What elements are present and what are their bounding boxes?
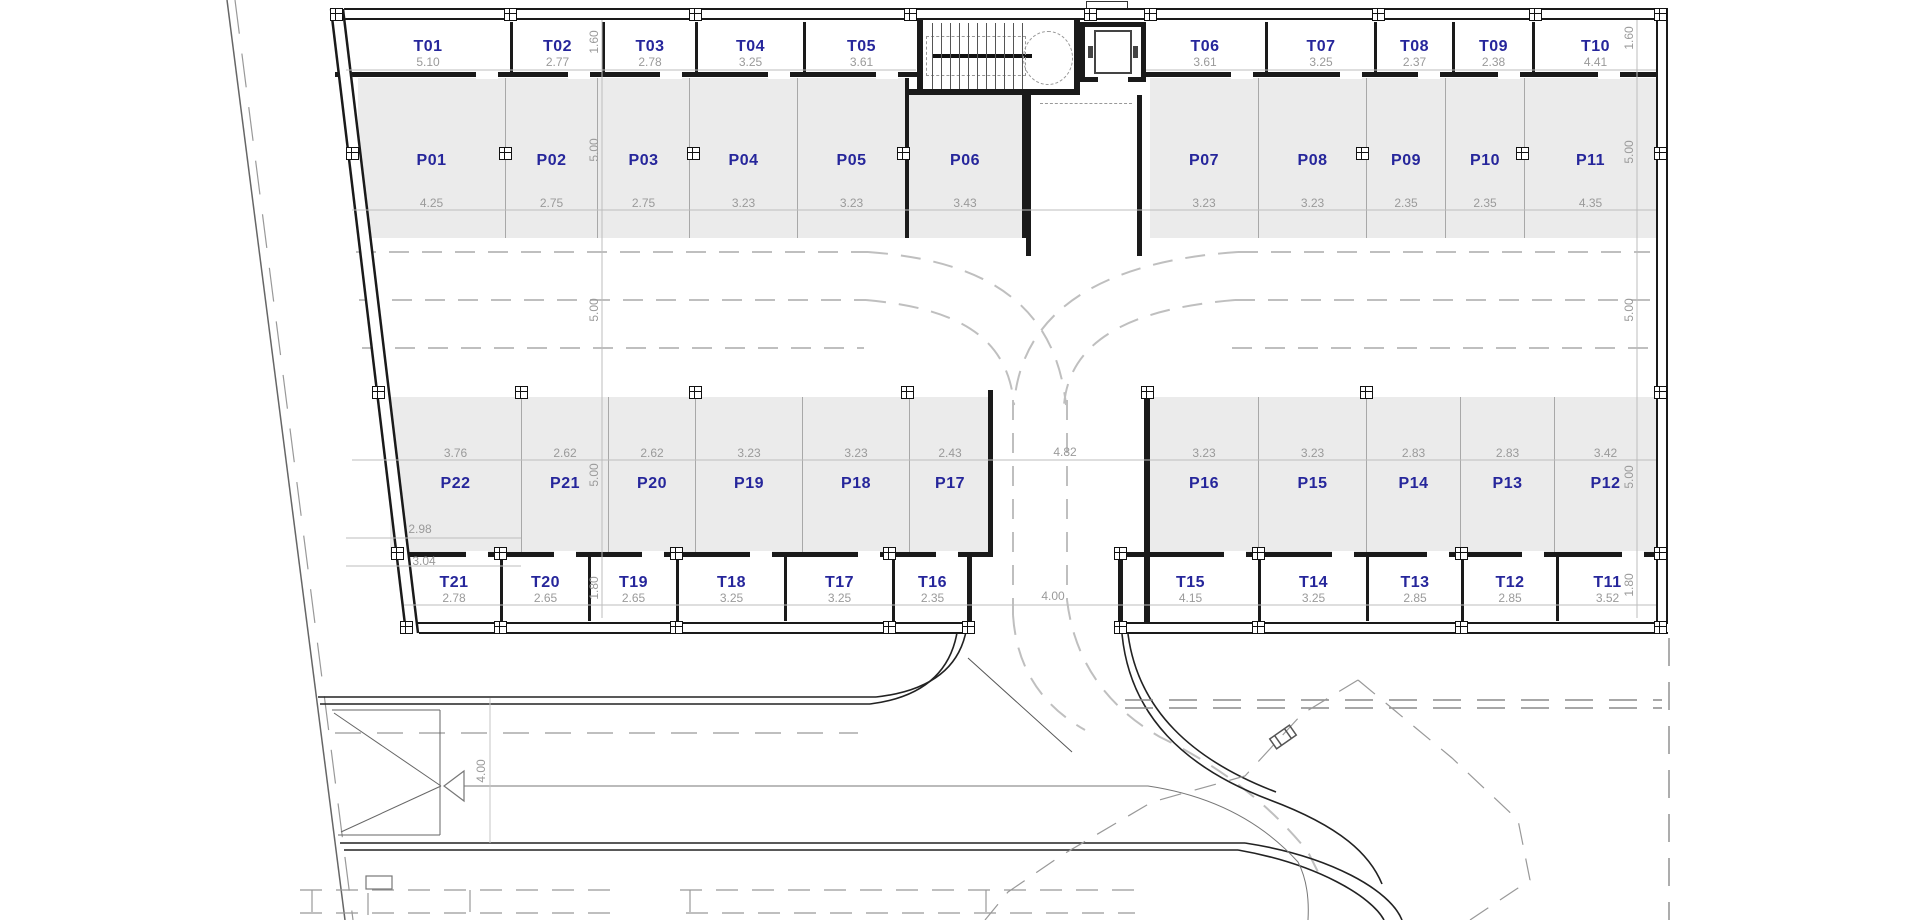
stair-tread xyxy=(995,23,996,89)
wall xyxy=(1141,22,1146,82)
column-marker xyxy=(504,8,517,21)
site-boundary-line xyxy=(227,0,345,920)
dimension-label: 1.80 xyxy=(1622,573,1636,596)
column-marker xyxy=(687,147,700,160)
parking-spot-P03: P032.75 xyxy=(597,78,689,238)
column-marker xyxy=(1516,147,1529,160)
room-label: P01 xyxy=(358,152,505,170)
parking-spot-P08: P083.23 xyxy=(1258,78,1366,238)
room-dimension: 3.25 xyxy=(1268,55,1374,69)
stair-tread xyxy=(941,23,942,89)
room-dimension: 4.35 xyxy=(1525,196,1656,210)
parking-spot-P17: P172.43 xyxy=(909,397,990,557)
room-label: P14 xyxy=(1367,475,1460,493)
storage-room-T20: T202.65 xyxy=(500,557,588,621)
room-label: T18 xyxy=(679,574,784,592)
storage-room-T05: T053.61 xyxy=(803,22,917,74)
door-opening xyxy=(750,551,772,559)
room-label: T17 xyxy=(787,574,892,592)
room-dimension: 2.37 xyxy=(1377,55,1452,69)
room-dimension: 2.65 xyxy=(503,591,588,605)
storage-room-T19: T192.65 xyxy=(588,557,676,621)
room-label: P18 xyxy=(803,475,909,493)
elevator-rail-right xyxy=(1133,46,1138,58)
column-marker xyxy=(1360,386,1373,399)
wall xyxy=(1120,552,1658,557)
room-label: T21 xyxy=(408,574,500,592)
room-label: P20 xyxy=(609,475,695,493)
room-label: P02 xyxy=(506,152,597,170)
room-label: P05 xyxy=(798,152,905,170)
room-label: T20 xyxy=(503,574,588,592)
dimension-label: 5.00 xyxy=(587,138,601,161)
column-marker xyxy=(1356,147,1369,160)
column-marker xyxy=(1252,547,1265,560)
column-marker xyxy=(689,8,702,21)
wall xyxy=(1128,77,1146,82)
storage-room-T11: T113.52 xyxy=(1556,557,1656,621)
room-dimension: 2.83 xyxy=(1461,446,1554,460)
storage-room-T13: T132.85 xyxy=(1366,557,1461,621)
parking-spot-P12: P123.42 xyxy=(1554,397,1656,557)
room-label: P13 xyxy=(1461,475,1554,493)
room-label: T03 xyxy=(605,38,695,56)
wall xyxy=(905,89,1080,95)
wall xyxy=(335,72,917,77)
room-dimension: 2.83 xyxy=(1367,446,1460,460)
stair-tread xyxy=(932,23,933,89)
room-dimension: 2.35 xyxy=(1446,196,1524,210)
wall xyxy=(917,20,923,95)
elevator-rail-left xyxy=(1088,46,1093,58)
column-marker xyxy=(689,386,702,399)
wall xyxy=(1144,390,1150,622)
parking-spot-P13: P132.83 xyxy=(1460,397,1554,557)
door-opening xyxy=(1332,551,1354,559)
parking-spot-P05: P053.23 xyxy=(797,78,905,238)
storage-room-T17: T173.25 xyxy=(784,557,892,621)
parking-spot-P09: P092.35 xyxy=(1366,78,1445,238)
door-opening xyxy=(660,71,682,79)
door-opening xyxy=(1340,71,1362,79)
parking-spot-P19: P193.23 xyxy=(695,397,802,557)
wall xyxy=(1137,228,1142,256)
room-dimension: 2.35 xyxy=(895,591,970,605)
room-label: T16 xyxy=(895,574,970,592)
stair-tread xyxy=(1013,23,1014,89)
column-marker xyxy=(901,386,914,399)
parking-spot-P04: P043.23 xyxy=(689,78,797,238)
wall xyxy=(404,552,990,557)
column-marker xyxy=(346,147,359,160)
storage-room-T07: T073.25 xyxy=(1265,22,1374,74)
room-dimension: 3.25 xyxy=(787,591,892,605)
storage-room-T03: T032.78 xyxy=(602,22,695,74)
door-opening xyxy=(936,551,958,559)
ramp-break-line xyxy=(968,658,1072,752)
parking-spot-P01: P014.25 xyxy=(358,78,505,238)
room-dimension: 3.23 xyxy=(803,446,909,460)
room-dimension: 4.25 xyxy=(358,196,505,210)
column-marker xyxy=(494,621,507,634)
dashed-site-lines xyxy=(1125,638,1669,920)
door-opening xyxy=(466,551,488,559)
room-label: P06 xyxy=(908,152,1022,170)
column-marker xyxy=(400,621,413,634)
lower-dashed-outlines xyxy=(300,680,1530,920)
column-marker xyxy=(1654,386,1667,399)
parking-spot-P18: P183.23 xyxy=(802,397,909,557)
room-label: T19 xyxy=(591,574,676,592)
room-dimension: 3.23 xyxy=(696,446,802,460)
parking-floor-plan: T015.10T022.77T032.78T043.25T053.61T063.… xyxy=(0,0,1920,920)
door-opening xyxy=(1224,551,1246,559)
room-label: T12 xyxy=(1464,574,1556,592)
door-opening xyxy=(568,71,590,79)
storage-room-T06: T063.61 xyxy=(1145,22,1265,74)
storage-room-T16: T162.35 xyxy=(892,557,970,621)
door-opening xyxy=(1418,71,1440,79)
room-dimension: 3.23 xyxy=(1150,196,1258,210)
turning-circle xyxy=(1023,31,1073,85)
dimension-label: 5.00 xyxy=(1622,298,1636,321)
parking-spot-P11: P114.35 xyxy=(1524,78,1656,238)
room-dimension: 2.78 xyxy=(605,55,695,69)
door-opening xyxy=(1522,551,1544,559)
room-dimension: 2.77 xyxy=(513,55,602,69)
dimension-label: 1.60 xyxy=(587,30,601,53)
storage-room-T04: T043.25 xyxy=(695,22,803,74)
storage-room-T18: T183.25 xyxy=(676,557,784,621)
room-label: P07 xyxy=(1150,152,1258,170)
room-label: T13 xyxy=(1369,574,1461,592)
column-marker xyxy=(515,386,528,399)
stair-tread xyxy=(977,23,978,89)
wall xyxy=(1656,8,1668,634)
gate-icon xyxy=(1270,725,1297,749)
wall xyxy=(1118,557,1123,622)
room-label: P16 xyxy=(1150,475,1258,493)
dimension-label: 5.00 xyxy=(1622,140,1636,163)
dimension-label: 1.60 xyxy=(1622,26,1636,49)
dimension-label: 3.04 xyxy=(412,554,435,568)
room-dimension: 2.43 xyxy=(910,446,990,460)
room-dimension: 3.52 xyxy=(1559,591,1656,605)
stair-tread xyxy=(1022,23,1023,89)
room-label: P03 xyxy=(598,152,689,170)
road-mid-line xyxy=(462,786,1308,920)
room-dimension: 2.75 xyxy=(506,196,597,210)
wall xyxy=(1120,622,1668,634)
room-label: T10 xyxy=(1535,38,1656,56)
room-dimension: 2.85 xyxy=(1464,591,1556,605)
wall xyxy=(1026,228,1031,256)
room-label: T01 xyxy=(346,38,510,56)
room-label: T14 xyxy=(1261,574,1366,592)
door-opening xyxy=(1498,71,1520,79)
column-marker xyxy=(897,147,910,160)
room-dimension: 2.35 xyxy=(1367,196,1445,210)
dimension-label: 5.00 xyxy=(587,463,601,486)
ramp-direction-arrow xyxy=(444,771,464,801)
door-opening xyxy=(1231,71,1253,79)
wall xyxy=(1026,95,1031,228)
room-dimension: 3.23 xyxy=(1150,446,1258,460)
column-marker xyxy=(670,547,683,560)
column-marker xyxy=(962,621,975,634)
room-label: T04 xyxy=(698,38,803,56)
door-opening xyxy=(768,71,790,79)
room-label: P09 xyxy=(1367,152,1445,170)
room-dimension: 2.78 xyxy=(408,591,500,605)
storage-room-T10: T104.41 xyxy=(1532,22,1656,74)
parking-spot-P16: P163.23 xyxy=(1150,397,1258,557)
room-label: T05 xyxy=(806,38,917,56)
room-label: P22 xyxy=(390,475,521,493)
room-label: P11 xyxy=(1525,152,1656,170)
room-dimension: 3.23 xyxy=(690,196,797,210)
column-marker xyxy=(1654,147,1667,160)
room-label: T09 xyxy=(1455,38,1532,56)
wall xyxy=(330,8,1668,20)
wall xyxy=(1080,22,1085,82)
room-dimension: 3.25 xyxy=(679,591,784,605)
room-label: P08 xyxy=(1259,152,1366,170)
door-opening xyxy=(642,551,664,559)
door-opening xyxy=(876,71,898,79)
door-opening xyxy=(858,551,880,559)
column-marker xyxy=(1144,8,1157,21)
room-dimension: 4.41 xyxy=(1535,55,1656,69)
column-marker xyxy=(1114,547,1127,560)
column-marker xyxy=(1252,621,1265,634)
parking-spot-P06: P063.43 xyxy=(908,93,1022,238)
parking-spot-P14: P142.83 xyxy=(1366,397,1460,557)
dimension-label: 5.00 xyxy=(1622,465,1636,488)
storage-room-T08: T082.37 xyxy=(1374,22,1452,74)
room-dimension: 3.25 xyxy=(698,55,803,69)
wall xyxy=(967,557,972,622)
column-marker xyxy=(1654,547,1667,560)
column-marker xyxy=(494,547,507,560)
room-label: T07 xyxy=(1268,38,1374,56)
wall xyxy=(1145,72,1658,77)
dimension-label: 5.00 xyxy=(587,298,601,321)
door-opening xyxy=(1622,551,1644,559)
room-dimension: 3.23 xyxy=(1259,446,1366,460)
wall xyxy=(988,390,993,557)
column-marker xyxy=(1654,621,1667,634)
storage-room-T09: T092.38 xyxy=(1452,22,1532,74)
room-dimension: 2.62 xyxy=(522,446,608,460)
room-dimension: 3.43 xyxy=(908,196,1022,210)
column-marker xyxy=(1455,621,1468,634)
room-dimension: 2.38 xyxy=(1455,55,1532,69)
parking-spot-P07: P073.23 xyxy=(1150,78,1258,238)
room-label: P17 xyxy=(910,475,990,493)
door-opening xyxy=(1427,551,1449,559)
room-dimension: 3.76 xyxy=(390,446,521,460)
storage-room-T14: T143.25 xyxy=(1258,557,1366,621)
parking-spot-P02: P022.75 xyxy=(505,78,597,238)
column-marker xyxy=(1084,8,1097,21)
room-dimension: 2.65 xyxy=(591,591,676,605)
room-dimension: 3.23 xyxy=(798,196,905,210)
parking-spot-P20: P202.62 xyxy=(608,397,695,557)
elevator-door-dashed xyxy=(1040,97,1132,104)
room-dimension: 2.85 xyxy=(1369,591,1461,605)
column-marker xyxy=(1529,8,1542,21)
stair-tread xyxy=(959,23,960,89)
elevator-car xyxy=(1094,30,1132,74)
door-opening xyxy=(554,551,576,559)
wall xyxy=(1080,22,1146,27)
storage-room-T12: T122.85 xyxy=(1461,557,1556,621)
wall xyxy=(1080,77,1098,82)
room-label: T08 xyxy=(1377,38,1452,56)
column-marker xyxy=(1372,8,1385,21)
room-label: P15 xyxy=(1259,475,1366,493)
column-marker xyxy=(330,8,343,21)
column-marker xyxy=(904,8,917,21)
door-opening xyxy=(476,71,498,79)
column-marker xyxy=(1114,621,1127,634)
column-marker xyxy=(1455,547,1468,560)
room-dimension: 3.23 xyxy=(1259,196,1366,210)
room-label: P04 xyxy=(690,152,797,170)
room-dimension: 3.25 xyxy=(1261,591,1366,605)
room-label: P10 xyxy=(1446,152,1524,170)
room-label: T06 xyxy=(1145,38,1265,56)
stair-tread xyxy=(1004,23,1005,89)
dimension-label: 4.00 xyxy=(474,759,488,782)
column-marker xyxy=(1654,8,1667,21)
column-marker xyxy=(499,147,512,160)
column-marker xyxy=(883,621,896,634)
column-marker xyxy=(670,621,683,634)
column-marker xyxy=(883,547,896,560)
parking-spot-P10: P102.35 xyxy=(1445,78,1524,238)
stair-tread xyxy=(950,23,951,89)
room-dimension: 3.61 xyxy=(806,55,917,69)
parking-spot-P15: P153.23 xyxy=(1258,397,1366,557)
room-label: T11 xyxy=(1559,574,1656,592)
dimension-label: 2.98 xyxy=(408,522,431,536)
room-dimension: 2.75 xyxy=(598,196,689,210)
room-label: P12 xyxy=(1555,475,1656,493)
room-dimension: 5.10 xyxy=(346,55,510,69)
dimension-label: 4.00 xyxy=(1041,589,1064,603)
column-marker xyxy=(391,547,404,560)
column-marker xyxy=(1141,386,1154,399)
stair-tread xyxy=(968,23,969,89)
room-dimension: 3.61 xyxy=(1145,55,1265,69)
room-dimension: 3.42 xyxy=(1555,446,1656,460)
stair-tread xyxy=(986,23,987,89)
room-label: P19 xyxy=(696,475,802,493)
room-dimension: 2.62 xyxy=(609,446,695,460)
wall xyxy=(1137,95,1142,228)
door-opening xyxy=(1598,71,1620,79)
dimension-label: 4.82 xyxy=(1053,445,1076,459)
column-marker xyxy=(372,386,385,399)
dimension-label: 1.80 xyxy=(587,576,601,599)
ramp xyxy=(332,710,441,835)
storage-room-T01: T015.10 xyxy=(346,22,510,74)
